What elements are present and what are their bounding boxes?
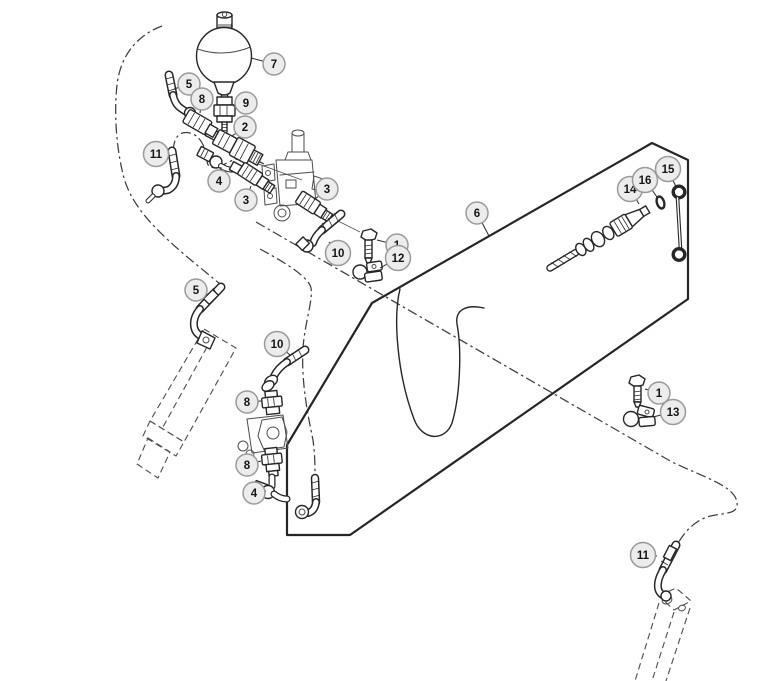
callout-number: 2 (242, 122, 248, 134)
callout-5: 5 (185, 279, 208, 301)
hose-end-elbow (296, 478, 321, 519)
elbow-hose-11-bottom (658, 545, 677, 601)
valve-bottom (238, 415, 288, 458)
callout-number: 4 (251, 488, 258, 500)
hose-clamp-13 (624, 405, 656, 427)
parts-diagram: 112334455678889101011111213141516 (0, 0, 781, 681)
callout-10: 10 (326, 241, 351, 266)
callout-number: 10 (271, 339, 284, 351)
fitting-8-mid (261, 390, 283, 415)
callout-3: 3 (314, 178, 338, 200)
callout-number: 10 (332, 248, 345, 260)
callout-number: 4 (216, 176, 223, 188)
cylinder-right (635, 588, 691, 681)
link-rod-15 (673, 186, 685, 260)
callout-number: 15 (662, 164, 675, 176)
callout-number: 3 (243, 195, 249, 207)
fitting-9 (214, 97, 235, 132)
callout-9: 9 (233, 92, 257, 114)
callout-2: 2 (232, 116, 256, 138)
callout-number: 3 (324, 184, 330, 196)
callout-number: 5 (193, 285, 200, 297)
callout-8: 8 (236, 391, 261, 413)
callout-11: 11 (144, 142, 170, 167)
hose-assembly-14 (546, 202, 652, 274)
accumulator (197, 12, 252, 99)
callout-number: 6 (474, 208, 480, 220)
callout-number: 13 (667, 407, 680, 419)
callout-number: 12 (392, 253, 405, 265)
callout-number: 11 (150, 149, 163, 161)
callout-number: 8 (199, 94, 206, 106)
callout-10: 10 (265, 332, 291, 357)
callout-7: 7 (251, 53, 285, 75)
callout-number: 8 (244, 397, 251, 409)
callout-11: 11 (631, 543, 658, 568)
mounting-bolt-right (629, 375, 645, 407)
o-ring-16 (655, 195, 666, 209)
hose-clamp-12 (353, 261, 382, 282)
callout-number: 11 (637, 550, 650, 562)
callout-15: 15 (656, 157, 681, 188)
callout-number: 7 (271, 59, 277, 71)
callout-4: 4 (243, 482, 266, 504)
callout-3: 3 (235, 186, 257, 211)
cylinder-left (137, 329, 236, 478)
mounting-bolt-top (361, 229, 377, 263)
callout-number: 5 (186, 79, 193, 91)
callout-number: 8 (244, 460, 251, 472)
callout-number: 16 (639, 175, 652, 187)
callout-6: 6 (466, 202, 489, 236)
callout-number: 1 (656, 388, 663, 400)
callout-8: 8 (236, 454, 261, 476)
callout-number: 9 (243, 98, 249, 110)
callout-12: 12 (380, 246, 411, 271)
